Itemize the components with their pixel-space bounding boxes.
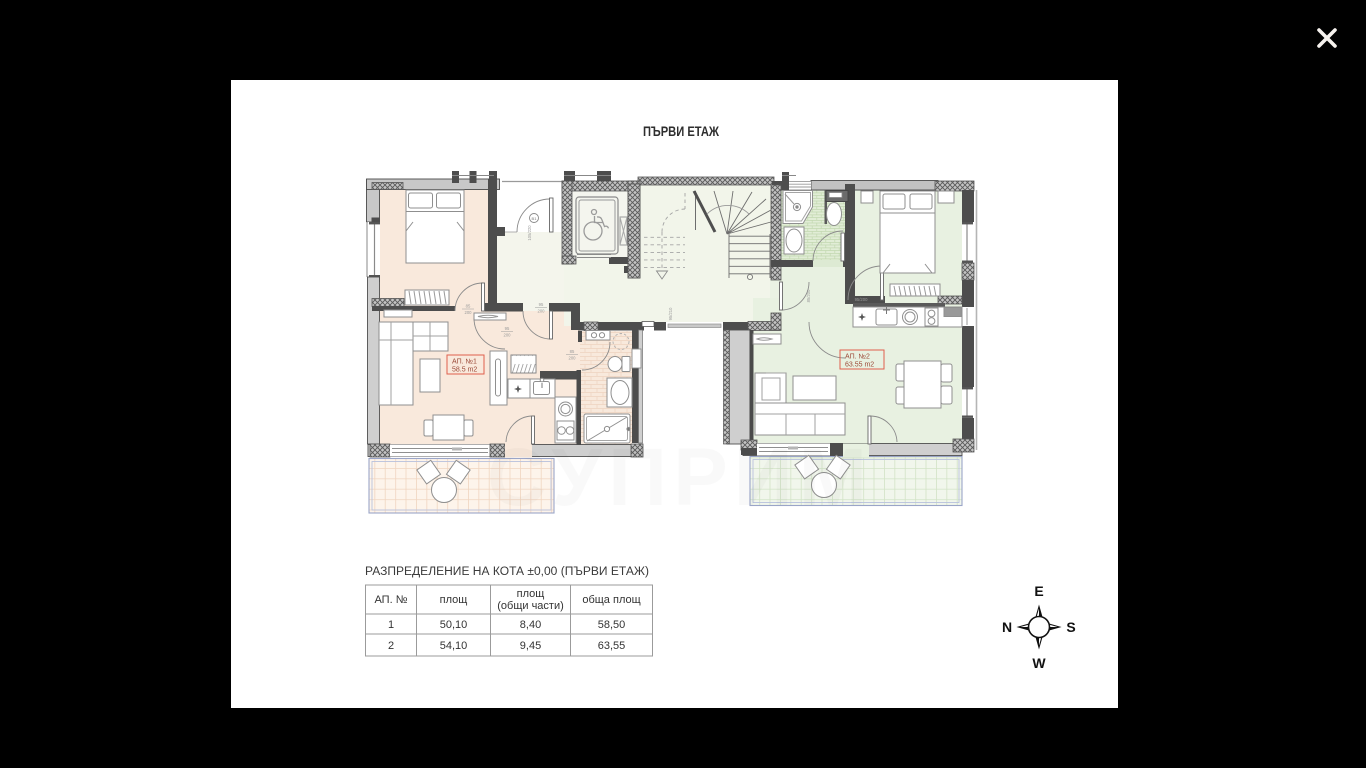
svg-text:200: 200 (504, 333, 512, 338)
svg-text:РАЗПРЕДЕЛЕНИЕ НА КОТА ±0,00 (П: РАЗПРЕДЕЛЕНИЕ НА КОТА ±0,00 (ПЪРВИ ЕТАЖ) (365, 564, 649, 578)
svg-text:9,45: 9,45 (520, 640, 541, 652)
svg-text:50,10: 50,10 (440, 619, 468, 631)
svg-text:АП. №1: АП. №1 (452, 359, 477, 366)
svg-text:63,55: 63,55 (598, 640, 626, 652)
svg-text:85/200: 85/200 (806, 289, 811, 302)
svg-text:54,10: 54,10 (440, 640, 468, 652)
svg-text:58.5 m2: 58.5 m2 (452, 367, 477, 374)
svg-text:S: S (1066, 619, 1075, 635)
svg-text:АП. №: АП. № (374, 594, 407, 606)
svg-text:95: 95 (505, 326, 510, 331)
svg-text:200: 200 (465, 310, 473, 315)
svg-text:площ: площ (440, 594, 468, 606)
svg-text:200: 200 (538, 309, 546, 314)
svg-text:95: 95 (539, 302, 544, 307)
svg-text:8,40: 8,40 (520, 619, 541, 631)
svg-text:ПЪРВИ ЕТАЖ: ПЪРВИ ЕТАЖ (643, 123, 719, 139)
svg-text:E: E (1034, 583, 1043, 599)
svg-text:200: 200 (569, 356, 577, 361)
svg-text:(общи части): (общи части) (497, 600, 564, 612)
svg-text:В1: В1 (532, 216, 538, 221)
svg-text:СУПРИМ: СУПРИМ (487, 432, 873, 523)
svg-text:95/210: 95/210 (668, 307, 673, 320)
svg-text:N: N (1002, 619, 1012, 635)
svg-text:85: 85 (466, 304, 471, 309)
svg-text:85: 85 (570, 349, 575, 354)
svg-text:АП. №2: АП. №2 (845, 354, 870, 361)
svg-text:63.55 m2: 63.55 m2 (845, 362, 874, 369)
svg-text:105/220: 105/220 (527, 225, 532, 241)
svg-text:обща площ: обща площ (582, 594, 640, 606)
svg-text:95/200: 95/200 (855, 297, 868, 302)
svg-text:W: W (1032, 655, 1046, 671)
svg-text:2: 2 (388, 640, 394, 652)
svg-text:1: 1 (388, 619, 394, 631)
svg-text:площ: площ (517, 588, 545, 600)
svg-text:58,50: 58,50 (598, 619, 626, 631)
